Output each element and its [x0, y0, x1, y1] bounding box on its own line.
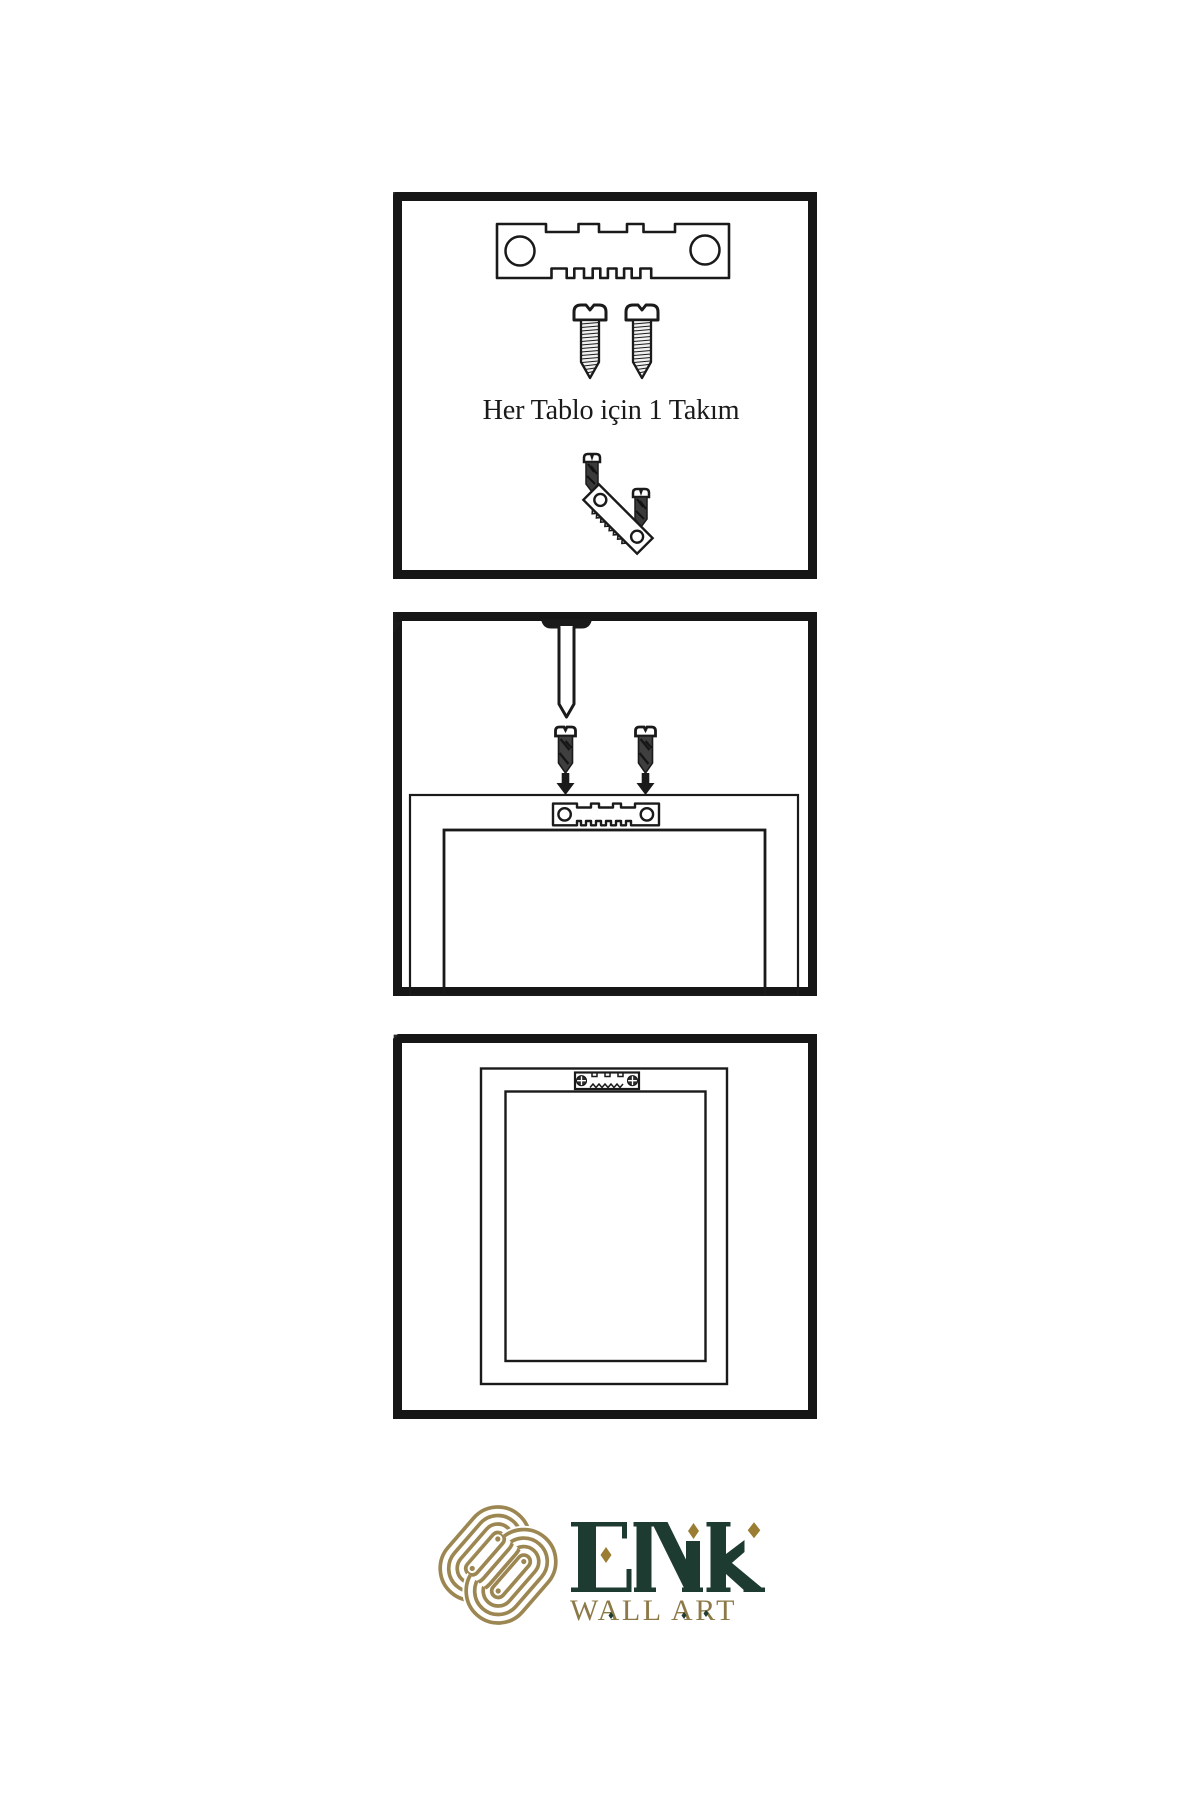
- svg-text:Her Tablo için 1 Takım: Her Tablo için 1 Takım: [483, 395, 740, 426]
- svg-text:WALL ART: WALL ART: [570, 1594, 737, 1627]
